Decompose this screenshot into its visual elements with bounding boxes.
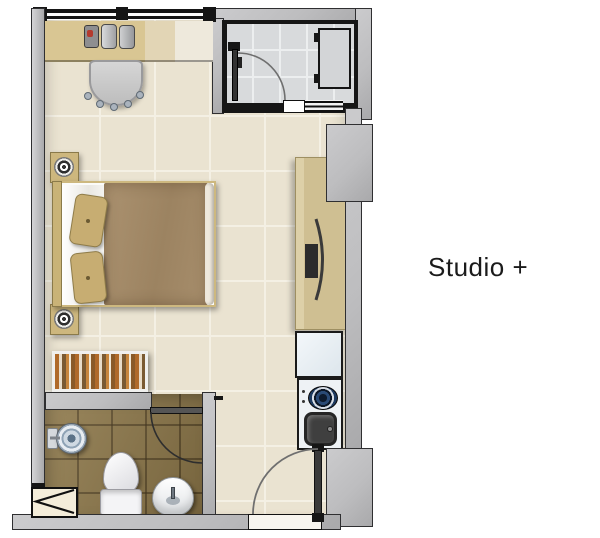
chair-caster-icon <box>110 103 118 111</box>
tv-icon <box>305 244 318 278</box>
blanket-edge-roll <box>205 183 214 305</box>
glass-panel-hinge-icon <box>314 33 320 42</box>
floor-plan-canvas: Studio + <box>0 0 600 538</box>
chair-caster-icon <box>84 92 92 100</box>
balcony-door-handle-icon <box>238 57 242 68</box>
cooktop-knob-icon <box>302 400 305 403</box>
entrance-threshold <box>248 514 322 530</box>
glass-panel <box>318 28 351 89</box>
chair-caster-icon <box>96 100 104 108</box>
bathroom-door-stop <box>214 396 223 400</box>
bed-headboard <box>52 181 62 307</box>
vent-shaft <box>31 487 78 518</box>
entrance-door-leaf <box>314 450 322 516</box>
left-wall <box>31 8 45 488</box>
desk-extension <box>145 21 175 62</box>
toilet-tank <box>100 489 142 516</box>
sink-faucet-icon <box>327 426 333 432</box>
bed-blanket <box>104 183 208 305</box>
basin-faucet-icon <box>171 487 175 499</box>
books-icon <box>119 25 135 49</box>
shower-head-icon <box>56 423 87 454</box>
book-red-accent <box>87 30 93 37</box>
nightstand-lamp-icon <box>54 309 74 329</box>
window-mullion <box>116 7 128 20</box>
window-right-cap <box>203 7 216 22</box>
unit-type-label: Studio + <box>428 252 528 283</box>
books-icon <box>101 24 117 49</box>
bathroom-door-leaf <box>150 407 203 414</box>
cooktop-burner-icon <box>308 386 338 410</box>
bathroom-top-wall <box>45 392 152 410</box>
pillow-button-icon <box>86 219 90 223</box>
wardrobe-hanging-clothes <box>52 351 148 392</box>
desk-counter-light <box>175 21 213 62</box>
nightstand-lamp-icon <box>54 157 74 177</box>
cooktop-knob-icon <box>302 390 305 393</box>
bathroom-right-wall <box>202 392 216 526</box>
refrigerator <box>295 331 343 378</box>
chair-caster-icon <box>136 91 144 99</box>
balcony-sill-block <box>283 100 305 113</box>
glass-panel-hinge-icon <box>314 74 320 83</box>
balcony-vent-louver <box>305 100 343 112</box>
entrance-door-jamb <box>312 513 324 522</box>
right-column <box>326 124 373 202</box>
chair-caster-icon <box>124 100 132 108</box>
pillow-button-icon <box>86 276 90 280</box>
